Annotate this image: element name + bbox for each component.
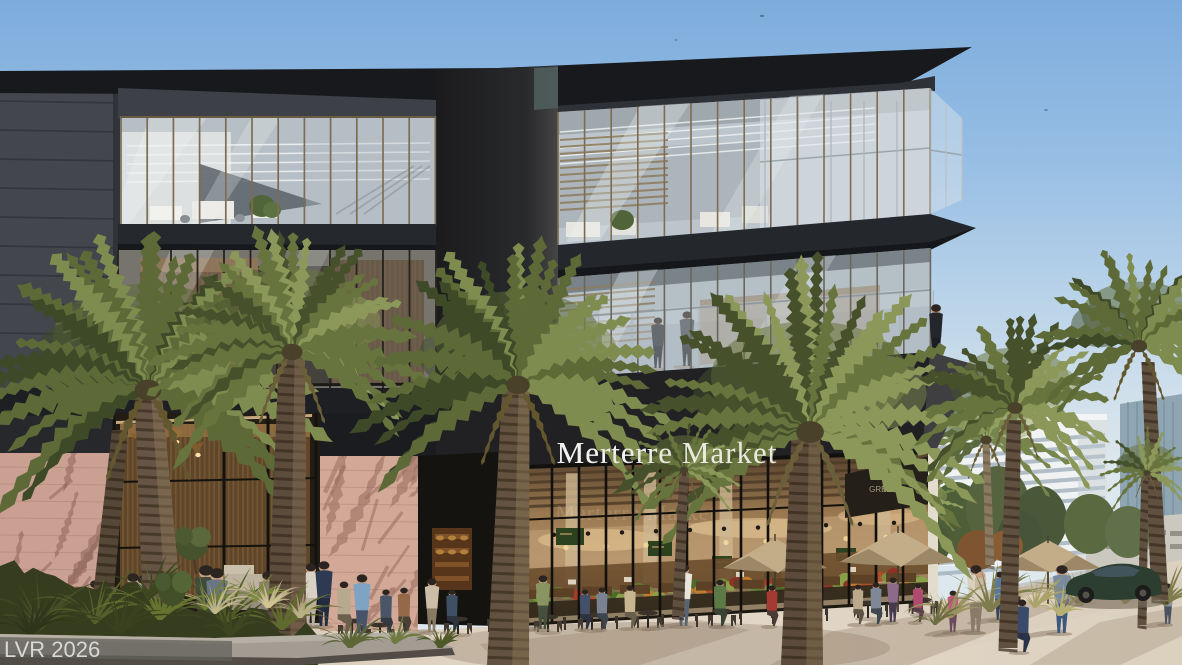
svg-text:Merterre Market: Merterre Market bbox=[557, 435, 778, 470]
svg-text:LVR 2026: LVR 2026 bbox=[4, 637, 100, 662]
